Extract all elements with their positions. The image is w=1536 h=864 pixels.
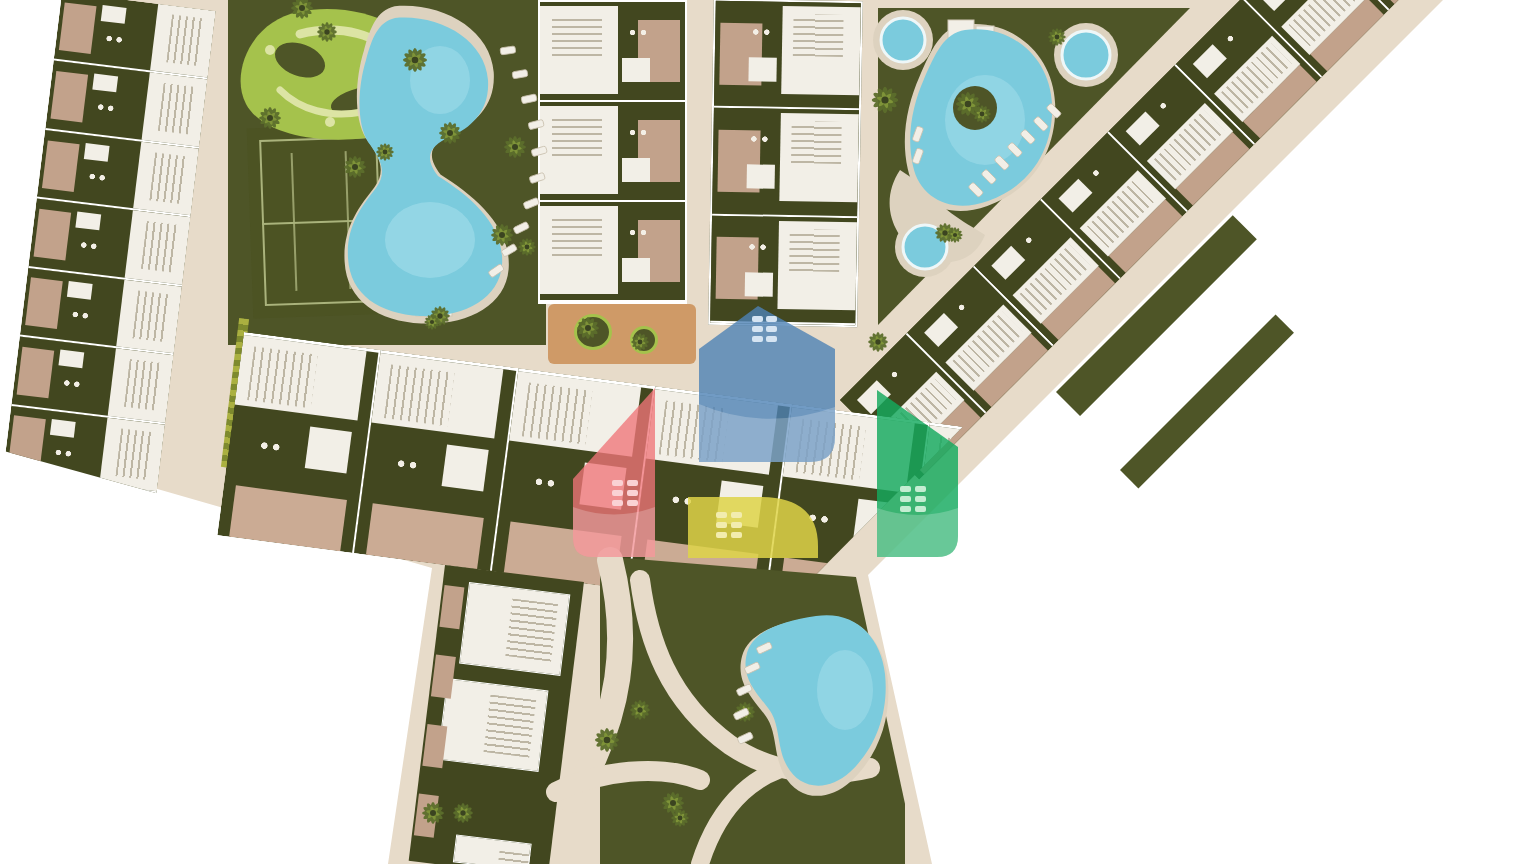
villa-patio <box>439 585 464 629</box>
apartment-unit <box>712 108 859 218</box>
villa-building <box>453 834 532 864</box>
tennis-court <box>247 124 396 319</box>
villa-patio <box>414 794 439 838</box>
apartment-unit <box>714 1 861 111</box>
garden-bed <box>630 326 658 354</box>
townhouse-unit <box>354 350 518 571</box>
apartment-unit <box>540 102 685 202</box>
apartment-unit <box>540 2 685 102</box>
apartment-block-a <box>538 0 687 304</box>
apartment-unit <box>710 215 857 325</box>
amenity-park <box>228 0 546 345</box>
site-plan-canvas <box>0 0 1536 864</box>
apartment-block-b <box>708 0 863 327</box>
villa-building <box>459 582 570 676</box>
playground-plaza <box>548 304 696 364</box>
townhouse-unit <box>492 368 656 589</box>
villa-building <box>437 678 548 772</box>
townhouse-unit <box>217 332 381 553</box>
south-pool-garden <box>600 556 905 864</box>
apartment-unit <box>540 202 685 302</box>
garden-bed <box>574 314 612 350</box>
villa-patio <box>422 724 447 768</box>
